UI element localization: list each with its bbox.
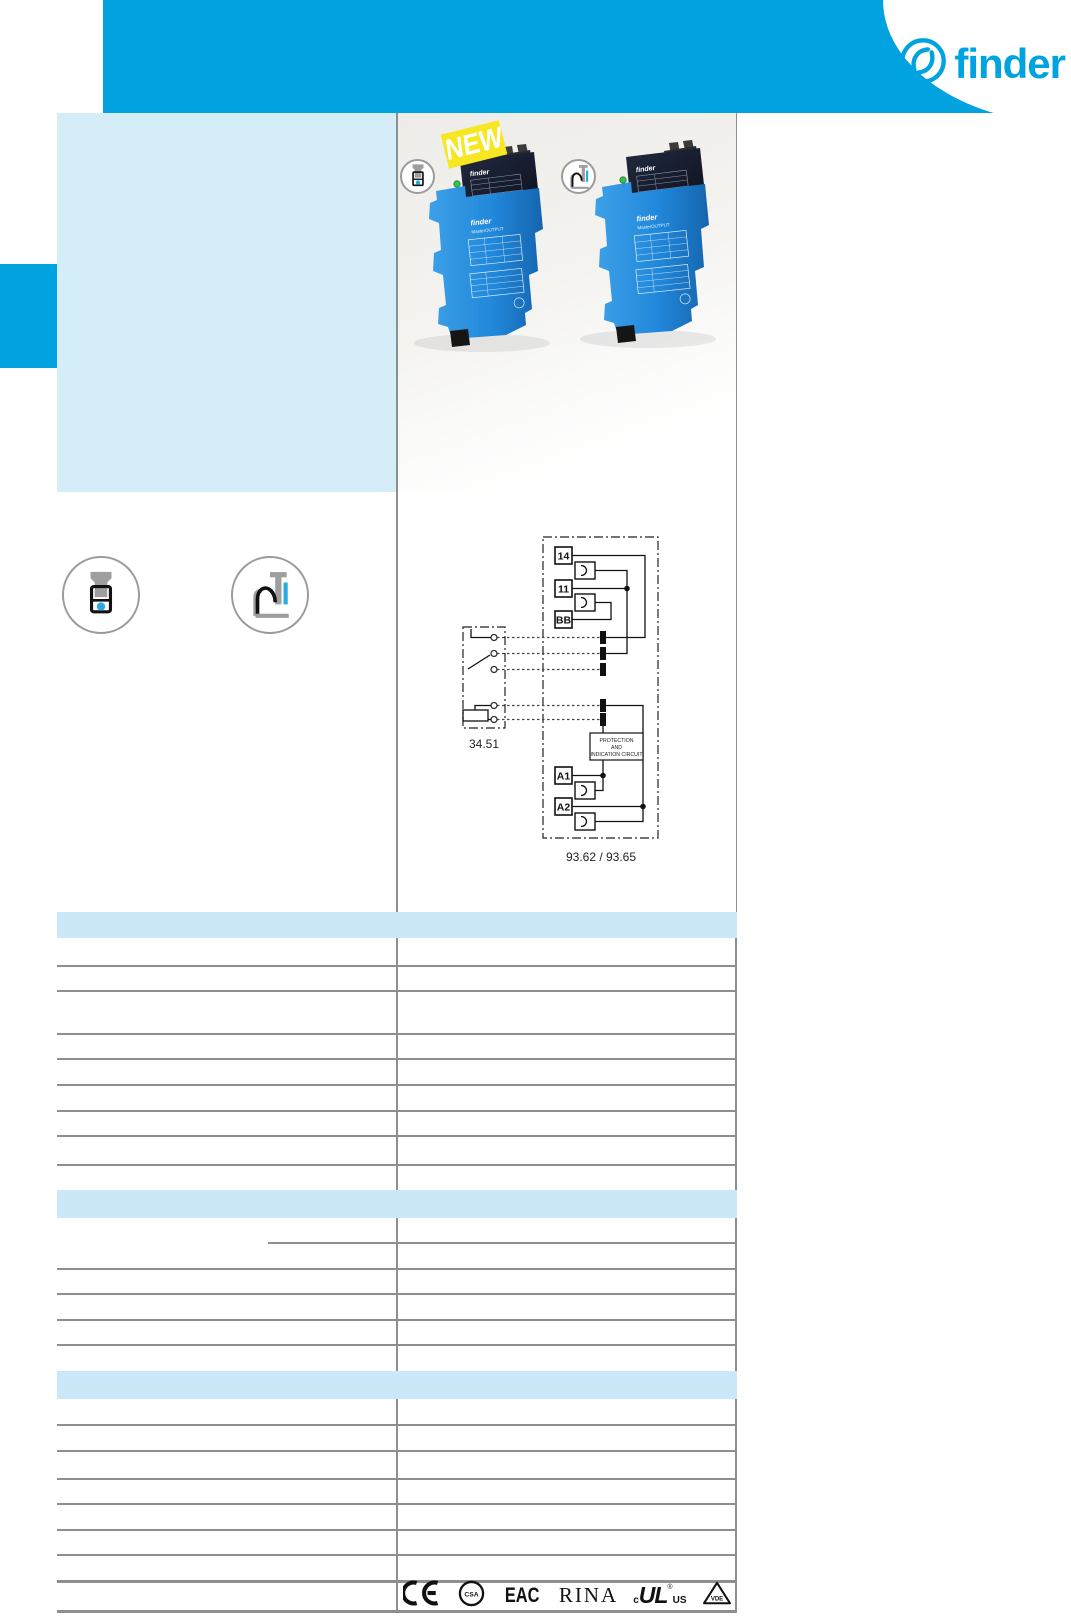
- table-rule: [57, 1058, 737, 1060]
- table-sub-rule: [268, 1242, 737, 1244]
- screw-terminal-icon: [62, 556, 140, 634]
- table-bottom-border: [57, 1610, 737, 1613]
- relay-contact-symbol: [463, 629, 491, 721]
- table-rule: [57, 1293, 737, 1295]
- ce-mark-icon: [403, 1580, 443, 1611]
- table-section-band: [57, 1371, 737, 1399]
- push-in-terminal-icon: [231, 556, 309, 634]
- table-rule: [57, 1268, 737, 1270]
- table-rule: [57, 1164, 737, 1166]
- finder-logo-text: finder: [954, 43, 1065, 85]
- svg-text:BB: BB: [556, 615, 572, 627]
- table-rule: [57, 990, 737, 992]
- socket-outline: [463, 627, 505, 728]
- table-section-band: [57, 1190, 737, 1218]
- socket-label: 34.51: [469, 737, 499, 751]
- table-rule: [57, 1450, 737, 1452]
- table-rule: [57, 1478, 737, 1480]
- csa-mark-icon: CSA: [458, 1580, 485, 1612]
- finder-logo-emblem-icon: [898, 36, 948, 91]
- connector-pins: [600, 631, 606, 726]
- push-in-terminal-icon: [561, 159, 596, 194]
- table-rule: [57, 1319, 737, 1321]
- table-rule: [57, 1135, 737, 1137]
- module-label: 93.62 / 93.65: [566, 850, 636, 864]
- svg-text:14: 14: [558, 551, 570, 563]
- table-rule: [57, 1424, 737, 1426]
- table-rule: [57, 1344, 737, 1346]
- table-rule: [57, 1503, 737, 1505]
- rina-mark: RINA: [559, 1583, 618, 1608]
- svg-text:11: 11: [558, 584, 569, 596]
- coil-symbol: [463, 710, 488, 721]
- page-edge-tab: [0, 264, 57, 368]
- vde-mark-icon: VDE: [702, 1581, 732, 1611]
- approvals-row: CSA EAC RINA c UL ® US VDE: [398, 1581, 736, 1610]
- wiring-diagram: 34.51 93.62 / 93.65: [398, 492, 736, 912]
- indicator-boxes: [575, 562, 595, 830]
- svg-text:CSA: CSA: [464, 1591, 478, 1598]
- table-section-band: [57, 912, 737, 938]
- eac-mark: EAC: [504, 1584, 539, 1608]
- finder-logo: finder: [898, 36, 1065, 91]
- datasheet-page: finder finder: [0, 0, 1071, 1616]
- svg-text:VDE: VDE: [710, 1596, 722, 1602]
- table-rule: [57, 965, 737, 967]
- screw-terminal-icon: [400, 159, 435, 194]
- terminal-boxes: 14 11 BB A1 A2: [555, 547, 572, 815]
- table-rule: [57, 1110, 737, 1112]
- feature-panel: [57, 113, 397, 492]
- cul-us-mark: c UL ® US: [633, 1584, 686, 1607]
- svg-text:A2: A2: [557, 802, 571, 814]
- svg-text:A1: A1: [557, 771, 571, 783]
- svg-text:INDICATION CIRCUIT: INDICATION CIRCUIT: [590, 752, 643, 758]
- table-rule: [57, 1084, 737, 1086]
- svg-text:PROTECTION: PROTECTION: [599, 738, 633, 744]
- table-rule: [57, 1554, 737, 1556]
- table-rule: [57, 1529, 737, 1531]
- svg-text:AND: AND: [611, 745, 622, 751]
- table-rule: [57, 1033, 737, 1035]
